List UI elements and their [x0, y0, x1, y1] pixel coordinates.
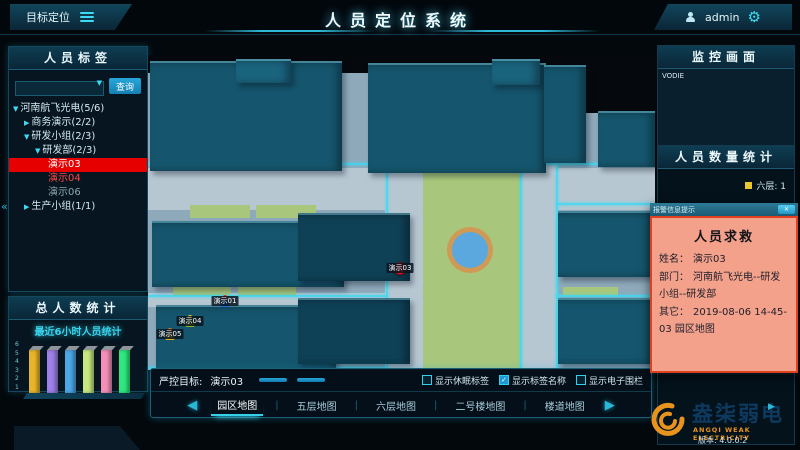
tree-item-label: 生产小组(1/1) — [31, 201, 95, 212]
map-tab[interactable]: 楼道地图 — [539, 396, 591, 415]
tree-item-label: 河南航飞光电(5/6) — [20, 103, 104, 114]
floor-count-legend: 六层: 1 — [658, 169, 794, 192]
title-decor-line — [205, 30, 375, 32]
tree-item[interactable]: ▶生产小组(1/1) — [9, 200, 147, 214]
building — [544, 65, 586, 163]
map-tab[interactable]: 五层地图 — [291, 396, 343, 415]
tag-search-row: ▼ 查询 — [9, 70, 147, 100]
sos-field-label: 姓名： — [659, 254, 689, 265]
y-tick: 1 — [15, 384, 19, 393]
tree-item-label: 研发小组(2/3) — [31, 131, 95, 142]
road-line — [520, 163, 522, 370]
marker-label: 演示01 — [212, 296, 239, 306]
sos-field: 部门：河南航飞光电--研发小组--研发部 — [659, 269, 789, 304]
tree-item[interactable]: 演示04 — [9, 172, 147, 186]
search-button[interactable]: 查询 — [109, 78, 141, 94]
sos-fields: 姓名：演示03 部门：河南航飞光电--研发小组--研发部 其它：2019-08-… — [659, 251, 789, 339]
tree-expand-icon[interactable]: ▶ — [24, 203, 29, 211]
sos-field: 其它：2019-08-06 14-45-03 园区地图 — [659, 304, 789, 339]
chart-base-platform — [23, 393, 145, 399]
video-source-label: VODIE — [658, 69, 794, 80]
display-option-checkbox[interactable]: 显示电子围栏 — [576, 374, 643, 387]
campus-map[interactable]: 演示03 演示01 演示04 演示05 — [148, 55, 655, 370]
tree-item[interactable]: 演示06 — [9, 186, 147, 200]
y-tick: 3 — [15, 367, 19, 376]
tab-separator: | — [275, 400, 278, 411]
personnel-tags-panel: 人员标签 ▼ 查询 ▼河南航飞光电(5/6) ▶商务演示(2/2) ▼研发小组(… — [8, 46, 148, 292]
marker-label: 演示05 — [157, 329, 184, 339]
checkbox-icon[interactable] — [422, 375, 432, 385]
person-marker[interactable]: 演示04 — [186, 315, 195, 327]
tree-item[interactable]: ▶商务演示(2/2) — [9, 116, 147, 130]
map-dark-zone — [585, 55, 655, 113]
strict-target-value: 演示03 — [210, 373, 243, 388]
bottom-left-decor — [14, 426, 140, 450]
display-option-checkbox[interactable]: 显示休眠标签 — [422, 374, 489, 387]
menu-button-label: 目标定位 — [26, 9, 70, 25]
app-window: 目标定位 人员定位系统 admin ⚙ « 人员标签 ▼ 查询 ▼河南航飞光电(… — [0, 0, 800, 450]
control-row: 严控目标: 演示03 显示休眠标签 ✓ 显示标签名称 显示电子围栏 — [151, 369, 651, 392]
version-label: 版本: 4.0.0.2 — [698, 435, 747, 446]
building — [598, 111, 655, 167]
road-line — [556, 203, 655, 205]
marker-label: 演示04 — [177, 316, 204, 326]
next-maps-arrow[interactable]: ▶ — [605, 398, 615, 413]
tree-item-label: 演示03 — [48, 159, 81, 170]
y-tick: 4 — [15, 358, 19, 367]
building — [298, 298, 410, 364]
tree-item-label: 商务演示(2/2) — [31, 117, 95, 128]
road — [520, 163, 558, 370]
map-tab[interactable]: 二号楼地图 — [449, 396, 511, 415]
y-tick: 6 — [15, 341, 19, 350]
person-marker[interactable]: 演示03 — [394, 262, 407, 275]
person-marker[interactable]: 演示05 — [166, 328, 175, 340]
sos-field-label: 其它： — [659, 307, 689, 318]
legend-label: 六层: 1 — [756, 179, 786, 192]
checkbox-label: 显示标签名称 — [512, 374, 566, 387]
building — [558, 298, 655, 364]
tree-item[interactable]: ▼研发小组(2/3) — [9, 130, 147, 144]
building-roof — [492, 59, 540, 85]
checkbox-label: 显示电子围栏 — [589, 374, 643, 387]
decor-play-icon: ▶ — [768, 402, 775, 412]
map-control-bar: 严控目标: 演示03 显示休眠标签 ✓ 显示标签名称 显示电子围栏 — [150, 368, 652, 418]
control-button[interactable] — [259, 378, 287, 382]
count-panel-title: 人员数量统计 — [658, 146, 794, 169]
alarm-popup-titlebar[interactable]: 报警信息提示 ✕ — [650, 203, 798, 216]
strict-target-label: 严控目标: — [159, 373, 202, 388]
personnel-tree: ▼河南航飞光电(5/6) ▶商务演示(2/2) ▼研发小组(2/3) ▼研发部(… — [9, 102, 147, 214]
map-tabs: 园区地图|五层地图|六层地图|二号楼地图|楼道地图 — [211, 395, 591, 416]
sos-field-value: 演示03 — [693, 254, 726, 265]
display-option-checkbox[interactable]: ✓ 显示标签名称 — [499, 374, 566, 387]
chart-bar — [29, 350, 40, 393]
hamburger-menu-icon[interactable] — [80, 12, 94, 22]
prev-maps-arrow[interactable]: ◀ — [187, 398, 197, 413]
chart-title: 最近6小时人员统计 — [13, 323, 143, 338]
title-decor-line — [430, 30, 600, 32]
map-tab[interactable]: 园区地图 — [211, 395, 263, 416]
sos-field: 姓名：演示03 — [659, 251, 789, 269]
chart-bar — [65, 350, 76, 393]
tree-expand-icon[interactable]: ▼ — [24, 133, 29, 141]
chart-bar — [119, 350, 130, 393]
page-title: 人员定位系统 — [325, 7, 475, 31]
hourly-chart: 最近6小时人员统计 654321 — [9, 320, 147, 399]
tab-separator: | — [434, 400, 437, 411]
map-tab-bar: ◀ 园区地图|五层地图|六层地图|二号楼地图|楼道地图 ▶ — [151, 392, 651, 418]
chart-bar — [101, 350, 112, 393]
legend-color-icon — [745, 182, 752, 189]
total-count-title: 总人数统计 — [9, 297, 147, 320]
sos-field-label: 部门： — [659, 272, 689, 283]
tree-item-label: 演示04 — [48, 173, 81, 184]
sos-title: 人员求救 — [659, 226, 789, 245]
tab-separator: | — [523, 400, 526, 411]
road-line — [148, 295, 386, 297]
tree-item-label: 研发部(2/3) — [42, 145, 96, 156]
settings-gear-icon[interactable]: ⚙ — [748, 10, 761, 25]
building — [558, 211, 655, 277]
map-tab[interactable]: 六层地图 — [370, 396, 422, 415]
tree-expand-icon[interactable]: ▶ — [24, 119, 29, 127]
tree-item[interactable]: 演示03 — [9, 158, 147, 172]
target-locate-menu-button[interactable]: 目标定位 — [10, 4, 132, 30]
tree-expand-icon[interactable]: ▼ — [35, 147, 40, 155]
sidebar-collapse-icon[interactable]: « — [1, 200, 8, 213]
tab-separator: | — [355, 400, 358, 411]
pond — [452, 232, 488, 268]
y-tick: 5 — [15, 350, 19, 359]
tree-expand-icon[interactable]: ▼ — [13, 105, 18, 113]
display-checkboxes: 显示休眠标签 ✓ 显示标签名称 显示电子围栏 — [422, 374, 643, 387]
chart-y-axis: 654321 — [15, 341, 19, 392]
building-roof — [236, 59, 291, 83]
control-button[interactable] — [297, 378, 325, 382]
monitor-panel-title: 监控画面 — [658, 46, 794, 69]
chart-bar — [83, 350, 94, 393]
alarm-popup: 报警信息提示 ✕ 人员求救 姓名：演示03 部门：河南航飞光电--研发小组--研… — [650, 203, 798, 375]
total-count-panel: 总人数统计 最近6小时人员统计 654321 — [8, 296, 148, 392]
checkbox-label: 显示休眠标签 — [435, 374, 489, 387]
user-name: admin — [705, 11, 739, 24]
y-tick: 2 — [15, 375, 19, 384]
user-account-button[interactable]: admin ⚙ — [654, 4, 792, 30]
chart-bars — [29, 341, 130, 393]
chart-bar — [47, 350, 58, 393]
tag-search-input[interactable] — [15, 81, 104, 96]
user-icon — [685, 12, 697, 22]
road-line — [556, 295, 655, 297]
control-buttons — [259, 378, 325, 382]
tree-item-label: 演示06 — [48, 187, 81, 198]
brand-spiral-icon — [648, 400, 688, 440]
marker-label: 演示03 — [387, 263, 414, 273]
person-marker[interactable]: 演示01 — [221, 295, 230, 307]
tags-panel-title: 人员标签 — [9, 47, 147, 70]
popup-close-button[interactable]: ✕ — [778, 205, 795, 214]
alarm-popup-body: 人员求救 姓名：演示03 部门：河南航飞光电--研发小组--研发部 其它：201… — [650, 216, 798, 373]
tree-item[interactable]: ▼河南航飞光电(5/6) — [9, 102, 147, 116]
monitor-video-area[interactable]: VODIE — [658, 69, 794, 146]
checkbox-icon[interactable] — [576, 375, 586, 385]
checkbox-icon[interactable]: ✓ — [499, 375, 509, 385]
brand-footer: 盎柒弱电 ANGQI WEAK ELECTRICITY 版本: 4.0.0.2 … — [640, 396, 798, 448]
lawn — [190, 205, 250, 218]
alarm-popup-title: 报警信息提示 — [653, 205, 695, 215]
tree-item[interactable]: ▼研发部(2/3) — [9, 144, 147, 158]
top-bar: 目标定位 人员定位系统 admin ⚙ — [0, 0, 800, 35]
